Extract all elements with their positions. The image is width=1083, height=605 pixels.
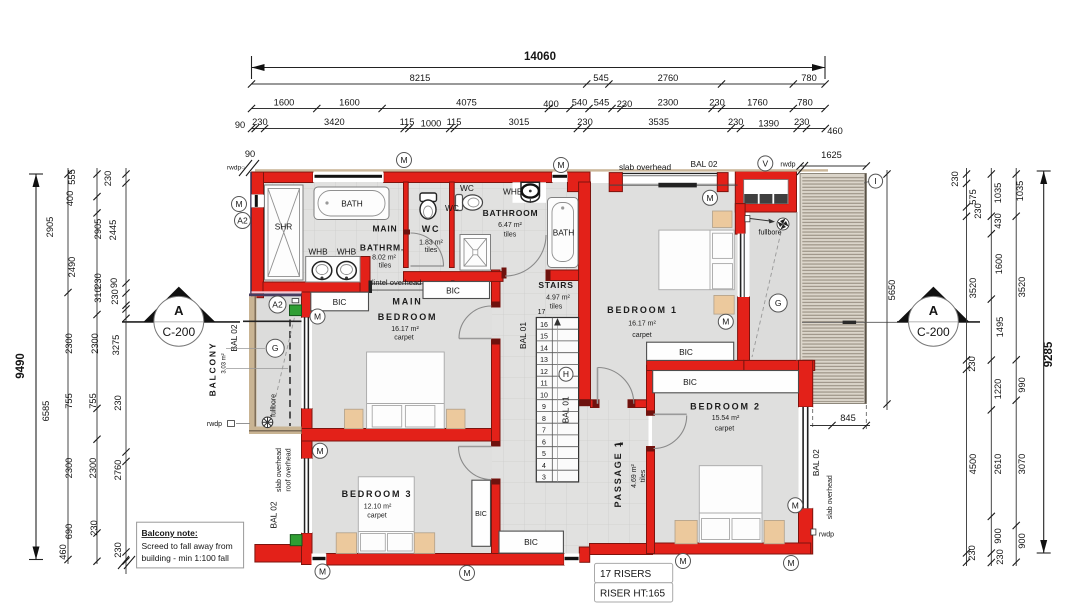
- svg-text:14060: 14060: [524, 51, 556, 63]
- svg-text:rwdp: rwdp: [819, 532, 834, 539]
- svg-text:M: M: [319, 567, 326, 577]
- svg-text:1035: 1035: [993, 183, 1003, 204]
- svg-text:3.03 m²: 3.03 m²: [222, 353, 228, 373]
- svg-text:H: H: [563, 369, 569, 379]
- svg-text:BEDROOM: BEDROOM: [378, 312, 438, 322]
- svg-text:BAL 01: BAL 01: [518, 322, 528, 349]
- svg-text:M: M: [792, 500, 799, 510]
- svg-text:carpet: carpet: [394, 335, 414, 342]
- svg-text:RISER HT:165: RISER HT:165: [600, 588, 665, 599]
- svg-text:rwdp: rwdp: [207, 421, 222, 428]
- svg-text:115: 115: [400, 117, 415, 127]
- svg-text:16: 16: [540, 322, 548, 329]
- svg-text:900: 900: [993, 528, 1003, 544]
- svg-text:BIC: BIC: [475, 511, 487, 518]
- svg-text:carpet: carpet: [715, 426, 735, 433]
- svg-text:4.97 m²: 4.97 m²: [546, 295, 570, 302]
- svg-text:15.54 m²: 15.54 m²: [712, 415, 740, 422]
- svg-text:BIC: BIC: [333, 297, 347, 307]
- svg-text:230: 230: [252, 117, 268, 127]
- svg-text:M: M: [316, 446, 323, 456]
- svg-text:555: 555: [67, 169, 77, 185]
- svg-text:rwdp○: rwdp○: [227, 165, 245, 172]
- svg-text:WC: WC: [460, 183, 474, 193]
- svg-text:building - min 1:100 fall: building - min 1:100 fall: [142, 553, 230, 563]
- svg-text:BATH: BATH: [553, 228, 575, 238]
- svg-text:BATHROOM: BATHROOM: [483, 208, 539, 218]
- svg-text:230: 230: [89, 520, 99, 536]
- svg-text:8.02 m²: 8.02 m²: [372, 255, 396, 262]
- svg-text:1760: 1760: [747, 98, 768, 108]
- svg-text:BAL 02: BAL 02: [691, 159, 718, 169]
- svg-text:C-200: C-200: [162, 325, 195, 339]
- svg-text:6.47 m²: 6.47 m²: [498, 222, 522, 229]
- svg-text:10: 10: [540, 392, 548, 399]
- svg-text:fullbore: fullbore: [271, 394, 278, 417]
- svg-text:230: 230: [728, 117, 744, 127]
- svg-text:BATHRM.: BATHRM.: [360, 243, 404, 253]
- svg-text:3520: 3520: [1017, 277, 1027, 298]
- svg-text:1600: 1600: [339, 98, 360, 108]
- svg-text:Balcony note:: Balcony note:: [142, 528, 198, 538]
- svg-text:90: 90: [109, 278, 119, 288]
- svg-text:G: G: [272, 343, 279, 353]
- svg-text:2300: 2300: [88, 458, 98, 479]
- svg-text:2300: 2300: [90, 333, 100, 354]
- svg-text:14: 14: [540, 345, 548, 352]
- svg-text:17: 17: [538, 309, 546, 316]
- svg-text:BEDROOM 2: BEDROOM 2: [690, 402, 761, 412]
- svg-text:BIC: BIC: [524, 537, 538, 547]
- svg-text:8215: 8215: [410, 73, 431, 83]
- svg-text:4075: 4075: [456, 98, 477, 108]
- svg-text:230: 230: [110, 289, 120, 305]
- svg-text:17 RISERS: 17 RISERS: [600, 569, 651, 580]
- svg-text:230: 230: [577, 117, 593, 127]
- svg-text:15: 15: [540, 334, 548, 341]
- svg-text:1495: 1495: [995, 317, 1005, 338]
- svg-text:M: M: [557, 160, 564, 170]
- svg-text:M: M: [463, 568, 470, 578]
- svg-text:lintel overhead: lintel overhead: [372, 278, 421, 287]
- svg-text:SHR: SHR: [275, 222, 293, 232]
- svg-text:545: 545: [594, 98, 610, 108]
- svg-text:3070: 3070: [1017, 454, 1027, 475]
- svg-text:1390: 1390: [758, 119, 779, 129]
- svg-text:230: 230: [967, 356, 977, 372]
- svg-text:1600: 1600: [274, 98, 295, 108]
- svg-text:3: 3: [542, 475, 546, 482]
- svg-text:845: 845: [840, 413, 856, 423]
- svg-text:780: 780: [801, 73, 817, 83]
- svg-text:BIC: BIC: [679, 347, 693, 357]
- svg-text:4500: 4500: [968, 454, 978, 475]
- svg-text:3420: 3420: [324, 117, 345, 127]
- svg-text:900: 900: [1017, 533, 1027, 549]
- svg-text:230: 230: [950, 171, 960, 187]
- svg-text:V: V: [762, 158, 768, 168]
- svg-text:540: 540: [572, 98, 588, 108]
- svg-text:230: 230: [709, 98, 725, 108]
- svg-text:2300: 2300: [658, 98, 679, 108]
- svg-text:460: 460: [827, 126, 843, 136]
- svg-text:460: 460: [58, 544, 68, 560]
- svg-text:BEDROOM 1: BEDROOM 1: [607, 305, 678, 315]
- svg-text:tiles: tiles: [550, 304, 563, 311]
- svg-text:3275: 3275: [111, 335, 121, 356]
- svg-text:4: 4: [542, 463, 546, 470]
- svg-text:rwdp: rwdp: [780, 162, 795, 169]
- svg-text:2490: 2490: [67, 257, 77, 278]
- svg-text:230: 230: [617, 99, 633, 109]
- svg-text:1000: 1000: [421, 119, 442, 129]
- svg-text:690: 690: [64, 524, 74, 540]
- svg-text:1.83 m²: 1.83 m²: [419, 240, 443, 247]
- svg-text:slab overhead: slab overhead: [276, 448, 283, 492]
- svg-text:A: A: [929, 303, 939, 318]
- svg-text:3520: 3520: [968, 278, 978, 299]
- svg-text:990: 990: [1017, 377, 1027, 393]
- svg-text:12: 12: [540, 369, 548, 376]
- svg-text:2300: 2300: [64, 458, 74, 479]
- svg-text:2905: 2905: [45, 217, 55, 238]
- svg-text:1625: 1625: [821, 150, 842, 160]
- svg-text:230: 230: [794, 117, 810, 127]
- svg-text:M: M: [706, 193, 713, 203]
- svg-text:3015: 3015: [509, 117, 530, 127]
- svg-text:5: 5: [542, 451, 546, 458]
- svg-text:M: M: [787, 558, 794, 568]
- svg-text:carpet: carpet: [632, 332, 652, 339]
- svg-text:310: 310: [93, 287, 103, 303]
- svg-text:13: 13: [540, 357, 548, 364]
- svg-text:tiles: tiles: [379, 263, 392, 270]
- svg-text:BAL 02: BAL 02: [811, 449, 821, 476]
- svg-text:755: 755: [64, 393, 74, 409]
- svg-text:slab overhead: slab overhead: [827, 475, 834, 519]
- svg-text:C-200: C-200: [917, 325, 950, 339]
- svg-text:400: 400: [543, 99, 559, 109]
- svg-text:I: I: [874, 176, 876, 186]
- svg-text:9490: 9490: [15, 353, 27, 379]
- svg-text:BAL 01: BAL 01: [561, 396, 571, 423]
- svg-text:BAL 02: BAL 02: [229, 324, 239, 351]
- svg-text:G: G: [775, 298, 782, 308]
- svg-text:11: 11: [540, 381, 547, 388]
- svg-text:PASSAGE 1: PASSAGE 1: [613, 440, 623, 507]
- svg-text:2905: 2905: [93, 219, 103, 240]
- svg-text:A2: A2: [237, 216, 248, 226]
- svg-text:MAIN: MAIN: [392, 297, 422, 307]
- svg-text:2300: 2300: [64, 333, 74, 354]
- svg-text:6: 6: [542, 439, 546, 446]
- svg-text:3535: 3535: [648, 117, 669, 127]
- svg-text:BATH: BATH: [341, 198, 363, 208]
- svg-text:WC: WC: [422, 224, 441, 234]
- svg-text:230: 230: [973, 203, 983, 219]
- svg-text:STAIRS: STAIRS: [538, 280, 573, 290]
- svg-text:M: M: [314, 312, 321, 322]
- svg-text:A: A: [174, 303, 184, 318]
- svg-text:230: 230: [967, 545, 977, 561]
- svg-text:755: 755: [88, 393, 98, 409]
- svg-text:8: 8: [542, 416, 546, 423]
- svg-text:MAIN: MAIN: [373, 224, 398, 234]
- svg-text:6585: 6585: [41, 401, 51, 422]
- svg-text:1220: 1220: [993, 379, 1003, 400]
- svg-text:2760: 2760: [658, 73, 679, 83]
- svg-text:2445: 2445: [108, 220, 118, 241]
- svg-text:M: M: [679, 556, 686, 566]
- svg-text:7: 7: [542, 428, 546, 435]
- svg-text:BIC: BIC: [446, 286, 460, 296]
- svg-text:M: M: [400, 155, 407, 165]
- svg-text:230: 230: [113, 395, 123, 411]
- svg-text:16.17 m²: 16.17 m²: [628, 321, 656, 328]
- svg-text:5650: 5650: [887, 280, 897, 301]
- svg-text:WC: WC: [445, 203, 459, 213]
- svg-text:545: 545: [593, 73, 609, 83]
- svg-text:1035: 1035: [1015, 181, 1025, 202]
- svg-text:Screed to fall away from: Screed to fall away from: [142, 541, 233, 551]
- svg-text:16.17 m²: 16.17 m²: [391, 326, 419, 333]
- svg-text:230: 230: [995, 549, 1005, 565]
- svg-text:9: 9: [542, 404, 546, 411]
- svg-text:tiles: tiles: [640, 469, 647, 482]
- svg-text:780: 780: [797, 98, 813, 108]
- svg-text:2610: 2610: [993, 454, 1003, 475]
- svg-text:WHB: WHB: [337, 247, 357, 257]
- svg-text:230: 230: [113, 542, 123, 558]
- svg-text:slab overhead: slab overhead: [619, 162, 672, 172]
- svg-text:575: 575: [968, 189, 978, 205]
- svg-text:M: M: [235, 199, 242, 209]
- svg-text:4.69 m²: 4.69 m²: [631, 463, 638, 487]
- svg-text:230: 230: [93, 273, 103, 289]
- svg-text:430: 430: [993, 213, 1003, 229]
- svg-text:2760: 2760: [113, 460, 123, 481]
- svg-text:90: 90: [235, 120, 245, 130]
- svg-text:9285: 9285: [1043, 341, 1055, 367]
- svg-text:tiles: tiles: [504, 232, 517, 239]
- svg-text:BIC: BIC: [683, 377, 697, 387]
- svg-text:BAL 02: BAL 02: [269, 501, 279, 528]
- svg-text:roof overhead: roof overhead: [286, 448, 293, 491]
- svg-text:230: 230: [103, 171, 113, 187]
- svg-text:WHB: WHB: [308, 247, 328, 257]
- svg-text:BALCONY: BALCONY: [208, 342, 218, 397]
- svg-text:carpet: carpet: [367, 513, 387, 520]
- svg-text:M: M: [722, 317, 729, 327]
- svg-text:WHB: WHB: [503, 187, 523, 197]
- svg-text:115: 115: [447, 117, 462, 127]
- svg-text:400: 400: [65, 191, 75, 207]
- svg-text:fullbore: fullbore: [759, 230, 782, 237]
- svg-text:1600: 1600: [994, 254, 1004, 275]
- svg-text:tiles: tiles: [425, 247, 438, 254]
- svg-text:90: 90: [245, 149, 255, 159]
- svg-text:A2: A2: [272, 300, 283, 310]
- svg-text:12.10 m²: 12.10 m²: [364, 504, 392, 511]
- svg-text:BEDROOM 3: BEDROOM 3: [342, 489, 413, 499]
